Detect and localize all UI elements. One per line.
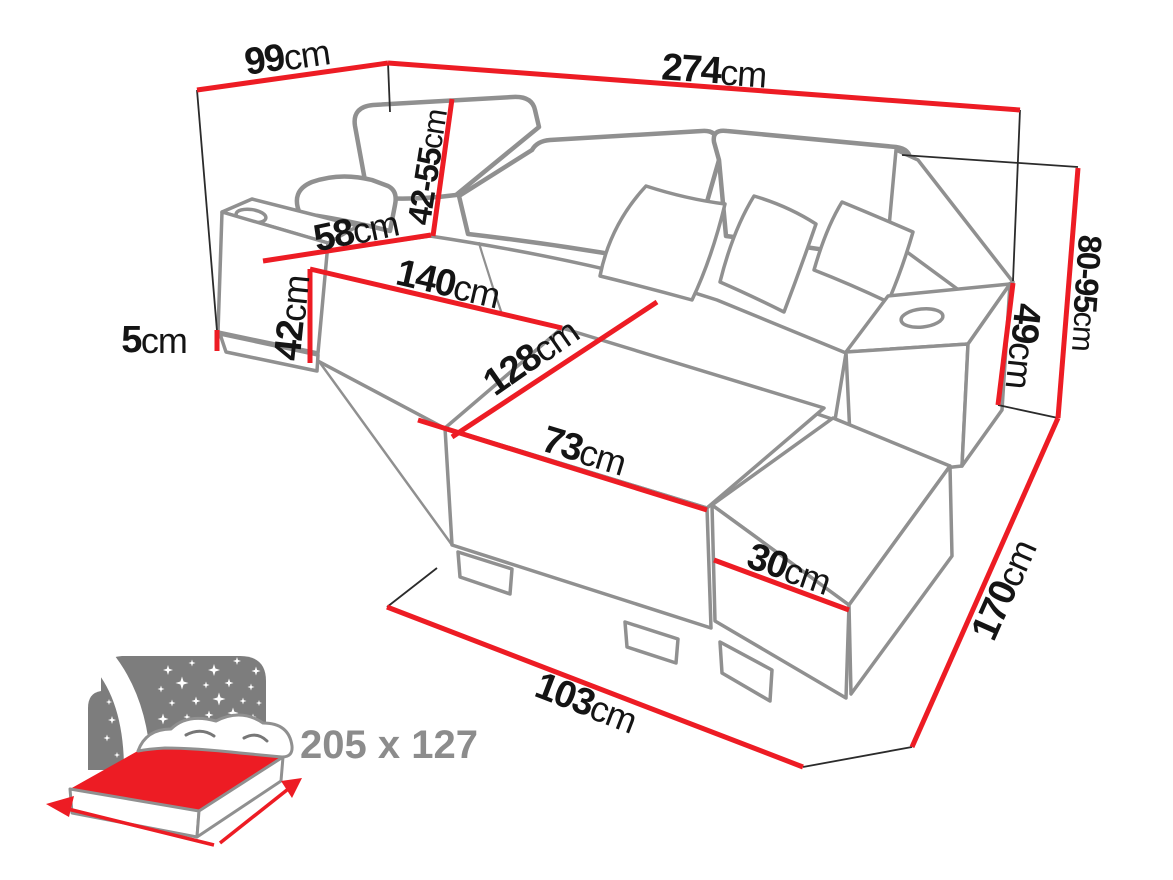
sofa-dimension-diagram: 99cm 274cm 42-55cm 58cm 140cm 42cm 5cm 1…: [0, 0, 1173, 880]
dim-label-99: 99cm: [242, 30, 332, 83]
diagram-canvas: 99cm 274cm 42-55cm 58cm 140cm 42cm 5cm 1…: [0, 0, 1173, 880]
chaise-leg: [625, 622, 678, 663]
extension-line: [387, 568, 437, 607]
extension-line: [998, 405, 1058, 418]
dim-label-5: 5cm: [121, 319, 187, 361]
dim-label-49: 49cm: [998, 301, 1049, 390]
back-right-side-panel: [888, 150, 1013, 302]
sofa-outline: [218, 97, 1013, 701]
extension-line: [803, 747, 912, 767]
sleeping-area-size: 205 x 127: [300, 723, 478, 767]
wall-edge-left: [197, 90, 217, 331]
dim-label-42: 42cm: [267, 273, 318, 362]
sleep-function-icon: 205 x 127: [46, 651, 478, 845]
dim-label-170: 170cm: [963, 534, 1044, 647]
wall-edge-right: [1013, 110, 1020, 281]
dim-label-274: 274cm: [660, 46, 768, 95]
dim-label-103: 103cm: [530, 665, 643, 742]
extension-line: [902, 155, 1078, 167]
